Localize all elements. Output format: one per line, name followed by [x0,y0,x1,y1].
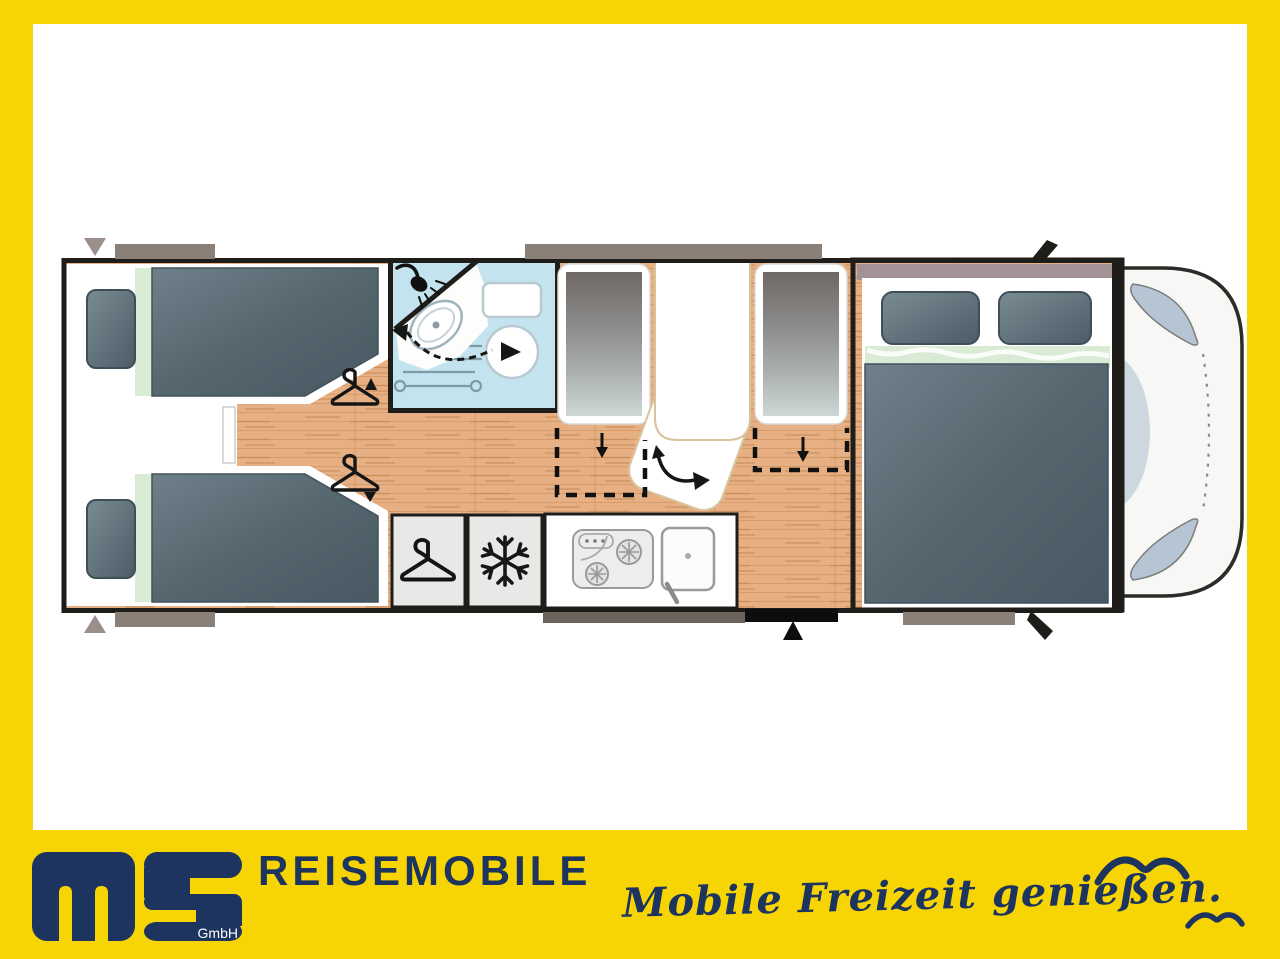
brand-wordmark: REISEMOBILE [258,850,591,892]
washroom [388,261,560,413]
logo-m-glyph [32,852,135,941]
bench-cushion [763,272,839,416]
window-bar [115,612,215,627]
pillow [999,292,1091,344]
bedding-strip-top [135,268,152,396]
page-frame: ❄ [0,0,1280,959]
toilet-tank [483,283,541,317]
cab-band [857,264,1117,280]
brand-band: GmbH REISEMOBILE Mobile Freizeit genieße… [0,830,1280,959]
front-double-bed [853,260,1122,610]
seagull-icon-large [1098,860,1186,882]
side-mirror-icon-bottom [1027,611,1053,640]
kitchen-sink [662,528,714,602]
stove [573,530,653,588]
rear-marker-arrow-top [84,238,106,256]
seagull-icons [1088,846,1253,951]
logo-gmbh: GmbH [198,925,238,941]
entry-door [745,609,838,622]
bedding-strip-bottom [135,474,152,602]
bench-cushion [566,272,642,416]
motorhome-floorplan: ❄ [55,228,1255,658]
pillow [87,290,135,368]
window-bar [525,244,822,259]
washroom-wall [388,261,393,411]
front-mattress [865,364,1108,603]
pillow [87,500,135,578]
seagull-icon-small [1188,915,1242,926]
washroom-wall [388,408,560,413]
entry-arrow-icon [783,621,803,640]
pillow [882,292,979,344]
window-bar [543,612,745,623]
rear-marker-arrow-bottom [84,615,106,633]
rear-step-edge [223,407,235,463]
window-bar [115,244,215,259]
rear-center-step [66,404,237,466]
lounge-table [655,261,750,440]
ms-logo: GmbH [32,852,246,946]
window-bar [903,612,1015,625]
